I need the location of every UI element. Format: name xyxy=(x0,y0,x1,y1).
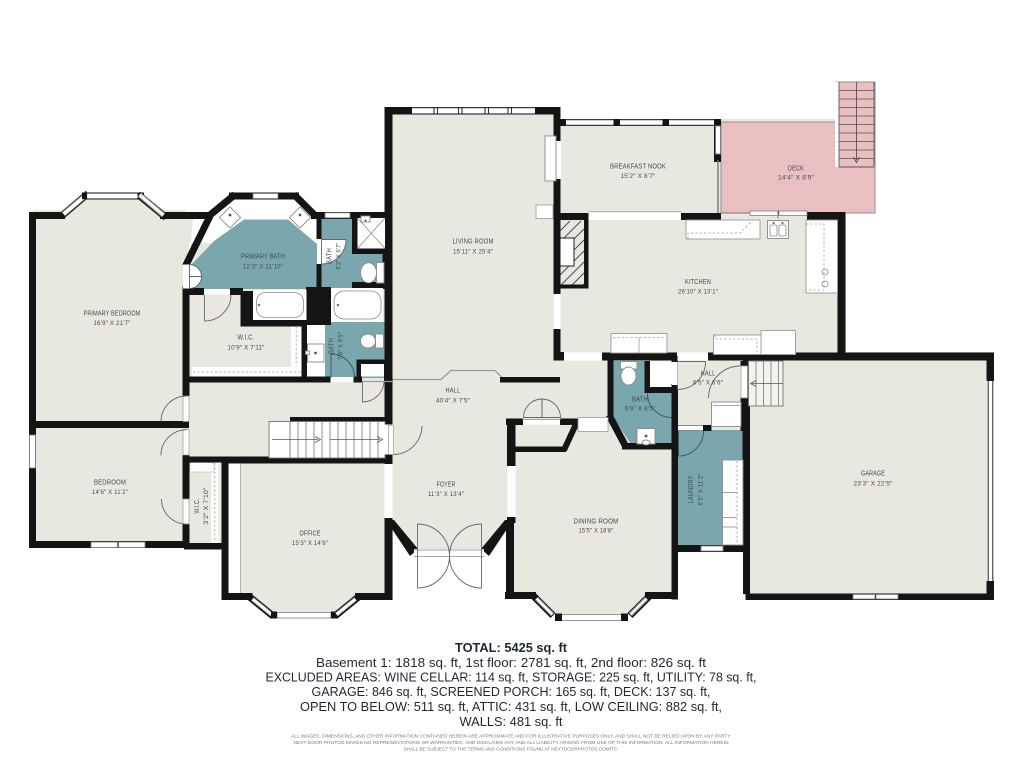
svg-text:3’2″ X 7’10″: 3’2″ X 7’10″ xyxy=(203,487,210,524)
svg-text:W.I.C.: W.I.C. xyxy=(238,335,255,342)
svg-text:TOTAL: 5425 sq. ft: TOTAL: 5425 sq. ft xyxy=(455,641,568,655)
svg-text:KITCHEN: KITCHEN xyxy=(685,279,711,286)
svg-text:OFFICE: OFFICE xyxy=(300,531,321,538)
svg-text:DINING ROOM: DINING ROOM xyxy=(574,519,619,526)
svg-text:14’6″ X 11’2″: 14’6″ X 11’2″ xyxy=(92,489,128,496)
svg-text:HALL: HALL xyxy=(701,371,716,378)
svg-text:PRIMARY BATH: PRIMARY BATH xyxy=(241,254,285,261)
svg-text:40’4″ X 7’5″: 40’4″ X 7’5″ xyxy=(436,398,470,405)
svg-text:14’4″ X 8’9″: 14’4″ X 8’9″ xyxy=(778,175,814,182)
svg-text:15’2″ X 8’7″: 15’2″ X 8’7″ xyxy=(621,173,656,180)
svg-text:DECK: DECK xyxy=(788,166,804,173)
svg-text:12’3″ X 11’10″: 12’3″ X 11’10″ xyxy=(243,264,283,271)
svg-text:11’3″ X 13’4″: 11’3″ X 13’4″ xyxy=(428,491,464,498)
svg-text:ALL IMAGES, DIMENSIONS, AND OT: ALL IMAGES, DIMENSIONS, AND OTHER INFORM… xyxy=(291,734,731,739)
svg-text:5’9″ X 8’5″: 5’9″ X 8’5″ xyxy=(625,406,656,413)
svg-text:7’8″ X 8’5″: 7’8″ X 8’5″ xyxy=(338,332,345,360)
svg-text:PRIMARY BEDROOM: PRIMARY BEDROOM xyxy=(84,311,141,318)
svg-text:BATH: BATH xyxy=(329,338,336,354)
svg-text:HALL: HALL xyxy=(446,388,461,395)
svg-text:23’3″ X 22’5″: 23’3″ X 22’5″ xyxy=(854,481,893,488)
svg-text:15’3″ X 14’9″: 15’3″ X 14’9″ xyxy=(292,540,328,547)
svg-text:15’11″ X 25’4″: 15’11″ X 25’4″ xyxy=(453,249,493,256)
svg-text:BEDROOM: BEDROOM xyxy=(94,480,126,487)
svg-text:15’5″ X 18’8″: 15’5″ X 18’8″ xyxy=(579,528,614,535)
svg-text:NEXT DOOR PHOTOS MAKES NO REPR: NEXT DOOR PHOTOS MAKES NO REPRESENTATION… xyxy=(294,740,729,745)
svg-text:LAUNDRY: LAUNDRY xyxy=(688,475,695,503)
svg-text:10’9″ X 7’11″: 10’9″ X 7’11″ xyxy=(228,345,265,352)
svg-text:26’10″ X 13’1″: 26’10″ X 13’1″ xyxy=(678,289,718,296)
svg-text:6’2″ X 6’7″: 6’2″ X 6’7″ xyxy=(336,242,343,269)
svg-text:16’9″ X 21’7″: 16’9″ X 21’7″ xyxy=(94,320,131,327)
svg-text:GARAGE: 846 sq. ft, SCREENED P: GARAGE: 846 sq. ft, SCREENED PORCH: 165 … xyxy=(312,685,711,699)
svg-text:WALLS: 481 sq. ft: WALLS: 481 sq. ft xyxy=(460,715,564,729)
svg-text:BREAKFAST NOOK: BREAKFAST NOOK xyxy=(610,164,666,171)
svg-text:Basement 1: 1818 sq. ft, 1st f: Basement 1: 1818 sq. ft, 1st floor: 2781… xyxy=(316,656,707,670)
svg-text:EXCLUDED AREAS: WINE CELLAR: 1: EXCLUDED AREAS: WINE CELLAR: 114 sq. ft,… xyxy=(266,671,757,685)
svg-text:LIVING ROOM: LIVING ROOM xyxy=(453,239,494,246)
svg-text:FOYER: FOYER xyxy=(437,482,456,489)
svg-text:W.I.C.: W.I.C. xyxy=(194,499,201,514)
svg-text:6’5″ X 6’6″: 6’5″ X 6’6″ xyxy=(693,380,723,387)
svg-text:SHALL BE SUBJECT TO THE TERMS: SHALL BE SUBJECT TO THE TERMS AND CONDIT… xyxy=(404,747,619,752)
svg-text:GARAGE: GARAGE xyxy=(861,471,885,478)
svg-text:BATH: BATH xyxy=(327,248,334,264)
svg-text:6’5″ X 11’2″: 6’5″ X 11’2″ xyxy=(698,473,705,505)
svg-text:BATH: BATH xyxy=(632,397,648,404)
svg-text:OPEN TO BELOW: 511 sq. ft, ATT: OPEN TO BELOW: 511 sq. ft, ATTIC: 431 sq… xyxy=(300,700,722,714)
